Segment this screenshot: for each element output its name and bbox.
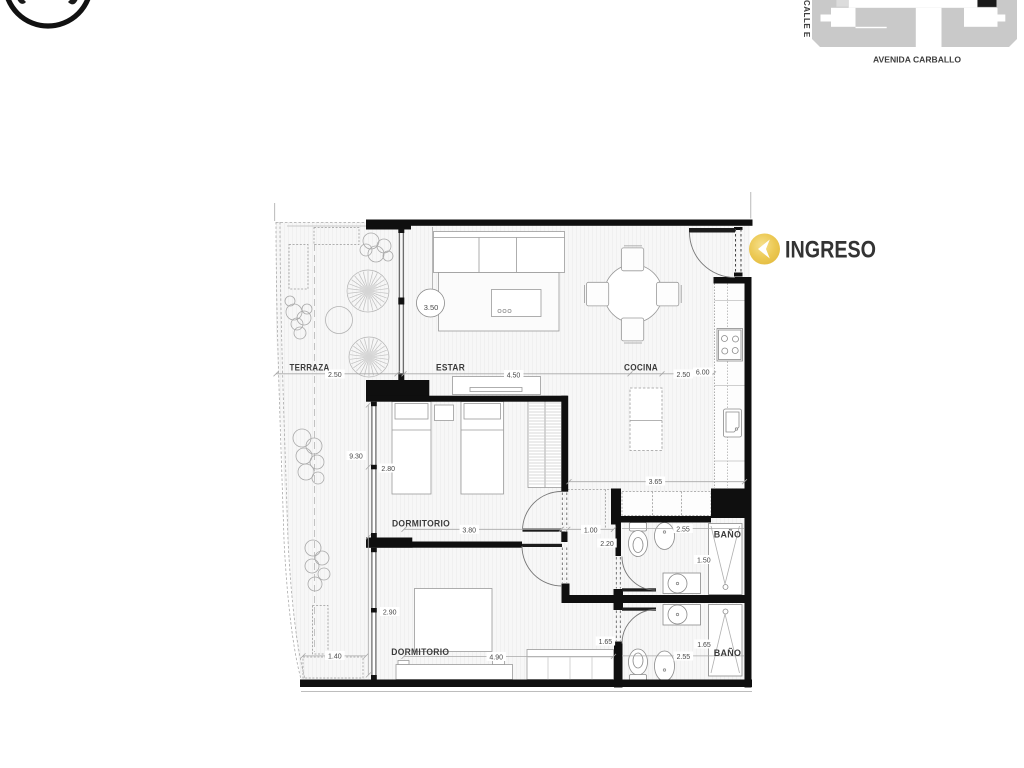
svg-text:1.40: 1.40	[328, 654, 342, 661]
svg-text:TERRAZA: TERRAZA	[290, 363, 330, 373]
svg-text:BAÑO: BAÑO	[714, 648, 742, 658]
svg-text:2.20: 2.20	[600, 541, 614, 548]
svg-text:CALLE E: CALLE E	[802, 0, 811, 38]
svg-text:1.50: 1.50	[697, 558, 711, 565]
svg-text:4.50: 4.50	[507, 373, 521, 380]
svg-text:DORMITORIO: DORMITORIO	[391, 647, 449, 657]
svg-text:6.00: 6.00	[696, 370, 710, 377]
svg-text:9.30: 9.30	[349, 454, 363, 461]
svg-text:COCINA: COCINA	[624, 363, 658, 373]
svg-text:2.50: 2.50	[676, 372, 690, 379]
svg-text:3.80: 3.80	[462, 527, 476, 534]
svg-text:2.90: 2.90	[383, 610, 397, 617]
svg-text:INGRESO: INGRESO	[785, 237, 876, 264]
svg-text:AVENIDA CARBALLO: AVENIDA CARBALLO	[873, 55, 961, 65]
svg-text:1.00: 1.00	[584, 527, 598, 534]
svg-text:DORMITORIO: DORMITORIO	[392, 519, 450, 529]
svg-text:4.90: 4.90	[489, 655, 503, 662]
svg-text:2.80: 2.80	[381, 466, 395, 473]
svg-text:ESTAR: ESTAR	[436, 363, 465, 373]
svg-text:BAÑO: BAÑO	[714, 530, 742, 540]
svg-text:3.65: 3.65	[649, 479, 663, 486]
svg-text:3.50: 3.50	[424, 303, 439, 312]
svg-text:1.65: 1.65	[697, 642, 711, 649]
svg-text:2.50: 2.50	[328, 372, 342, 379]
svg-text:2.55: 2.55	[677, 654, 691, 661]
svg-text:1.65: 1.65	[599, 639, 613, 646]
svg-text:2.55: 2.55	[676, 527, 690, 534]
